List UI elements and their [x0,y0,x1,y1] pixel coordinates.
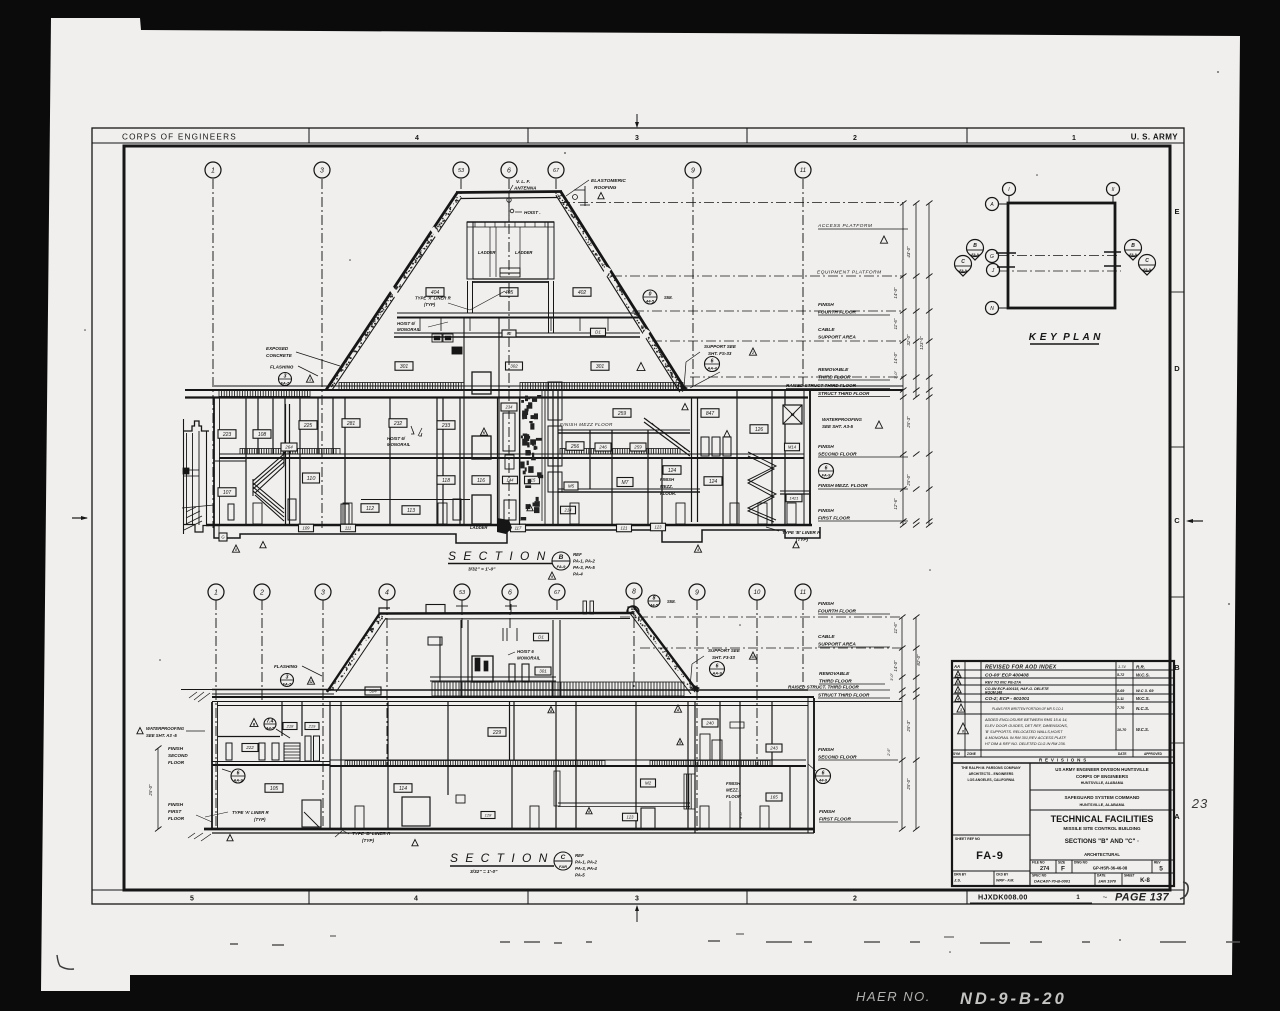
svg-text:FINISH: FINISH [818,601,834,607]
svg-text:ANTENNA: ANTENNA [513,186,536,191]
svg-text:C: C [1145,258,1149,264]
svg-text:J: J [991,268,995,274]
svg-text:14'-0": 14'-0" [893,660,898,672]
svg-text:234: 234 [505,405,514,410]
svg-text:FLASHING: FLASHING [274,664,298,669]
svg-text:SHEET: SHEET [1124,874,1135,878]
svg-text:SECOND: SECOND [168,753,188,758]
svg-text:D1: D1 [595,330,601,335]
svg-text:M5: M5 [568,484,575,489]
svg-text:0: 0 [649,292,652,298]
svg-text:144: 144 [507,478,515,483]
svg-text:FA-9: FA-9 [971,253,978,257]
svg-text:REMOVABLE: REMOVABLE [819,671,850,677]
svg-text:44-5: 44-5 [645,299,655,304]
svg-text:MONORAIL: MONORAIL [397,327,421,332]
svg-text:M2: M2 [645,781,652,786]
svg-text:PA-4: PA-4 [573,572,583,577]
svg-text:301: 301 [596,364,605,370]
svg-text:4: 4 [696,548,699,552]
svg-text:25'-3": 25'-3" [906,720,911,733]
svg-text:FLOOR.: FLOOR. [660,491,676,496]
svg-text:MONORAIL: MONORAIL [517,656,541,661]
svg-text:1-11: 1-11 [1117,697,1124,701]
svg-text:CABLE: CABLE [818,327,835,333]
svg-text:6: 6 [822,771,825,777]
svg-text:11'-6": 11'-6" [893,318,898,329]
svg-text:REV TO INC PE-27A: REV TO INC PE-27A [985,681,1021,685]
svg-text:FA-9: FA-9 [976,850,1004,862]
svg-text:HAER NO.: HAER NO. [856,989,931,1004]
svg-text:AA-4: AA-4 [706,366,717,371]
svg-text:82'-0": 82'-0" [916,654,921,666]
svg-text:W.C.S.: W.C.S. [1136,696,1150,701]
svg-text:SYM: SYM [953,752,960,756]
svg-text:10: 10 [751,655,755,659]
svg-text:THIRD FLOOR: THIRD FLOOR [818,375,851,381]
svg-text:53: 53 [458,168,465,174]
svg-text:ARCHITECTS - ENGINEERS: ARCHITECTS - ENGINEERS [969,772,1015,776]
svg-text:1: 1 [1072,135,1076,142]
svg-text:P L A N: P L A N [1063,332,1101,343]
svg-text:K E Y: K E Y [1029,332,1058,343]
svg-text:274: 274 [1040,866,1050,872]
svg-text:WRP - F.M.: WRP - F.M. [996,879,1014,883]
svg-text:225: 225 [303,423,313,429]
svg-text:CO-2; ECP - 601001: CO-2; ECP - 601001 [985,696,1030,702]
svg-text:FINISH MEZZ FLOOR: FINISH MEZZ FLOOR [560,422,613,427]
svg-text:1: 1 [211,168,215,175]
svg-text:DWG NO: DWG NO [1074,861,1088,865]
svg-text:8: 8 [235,548,237,552]
svg-text:4: 4 [956,697,959,701]
svg-text:PA-3, PA-4: PA-3, PA-4 [575,866,597,871]
svg-text:THE RALPH M. PARSONS COMPANY: THE RALPH M. PARSONS COMPANY [961,766,1021,770]
svg-text:8: 8 [632,589,636,596]
svg-text:EQUIPMENT PLATFORM: EQUIPMENT PLATFORM [817,270,882,276]
svg-text:14'-0": 14'-0" [893,352,898,364]
svg-text:MEZZ.: MEZZ. [726,788,739,793]
svg-text:FINISH: FINISH [168,746,184,751]
svg-text:FINISH: FINISH [818,444,834,450]
svg-text:6: 6 [711,359,714,365]
svg-text:CKD BY: CKD BY [996,873,1009,877]
svg-text:67: 67 [553,168,560,174]
svg-text:FA-9: FA-9 [959,269,966,273]
svg-text:REV: REV [1154,861,1161,865]
svg-text:TECHNICAL FACILITIES: TECHNICAL FACILITIES [1051,814,1154,824]
svg-text:109: 109 [303,526,311,531]
svg-text:44-5: 44-5 [649,603,659,608]
svg-text:FLOOR: FLOOR [168,760,185,765]
svg-text:7-70: 7-70 [1117,706,1124,710]
svg-text:117: 117 [515,526,522,531]
svg-text:107: 107 [223,490,232,496]
svg-text:12'-6": 12'-6" [893,498,898,510]
svg-text:WATERPROOFING: WATERPROOFING [146,726,185,731]
svg-text:13: 13 [956,681,960,685]
svg-text:214: 214 [564,508,573,513]
svg-text:11'-6": 11'-6" [893,622,898,633]
svg-text:W.C.S.: W.C.S. [1136,727,1149,732]
svg-text:402: 402 [578,290,587,296]
svg-text:K-8: K-8 [1140,878,1150,884]
svg-text:ROOFING: ROOFING [594,185,617,191]
svg-text:C: C [561,854,566,861]
svg-text:256: 256 [570,444,580,450]
svg-text:ND-9-B-20: ND-9-B-20 [960,990,1067,1008]
svg-text:DACA87-70-B-0001: DACA87-70-B-0001 [1034,879,1071,884]
svg-text:259: 259 [633,445,642,450]
svg-text:3: 3 [286,675,289,681]
svg-text:ROOM 248: ROOM 248 [985,691,1002,695]
svg-text:HOIST 6: HOIST 6 [517,649,534,654]
svg-text:R E V I S I O N S: R E V I S I O N S [1039,758,1087,763]
svg-text:D1: D1 [538,635,544,640]
svg-text:7.4: 7.4 [267,719,274,725]
svg-text:E: E [1174,207,1179,216]
svg-text:123: 123 [655,525,663,530]
svg-text:FA-9: FA-9 [557,564,566,569]
svg-text:REF: REF [573,552,582,557]
svg-text:124: 124 [668,468,677,474]
svg-text:AA-9: AA-9 [711,671,722,676]
svg-text:3: 3 [635,135,639,142]
svg-text:12: 12 [309,680,313,684]
svg-text:2'-6": 2'-6" [887,748,891,757]
svg-text:25'-0": 25'-0" [906,778,911,791]
svg-text:3/32" = 1'-0": 3/32" = 1'-0" [468,567,496,573]
svg-text:WATERPROOFING: WATERPROOFING [822,417,862,422]
svg-text:5: 5 [679,741,681,745]
svg-text:PLANS PER WRITTEN PORTION OF M: PLANS PER WRITTEN PORTION OF MR S CO-1 [992,707,1063,711]
svg-text:HT DIM & REF NO. DELETED CLG I: HT DIM & REF NO. DELETED CLG IN RM 236. [985,742,1066,746]
svg-text:44-9: 44-9 [818,778,828,783]
svg-text:123'-5": 123'-5" [919,336,924,350]
svg-text:FAR: FAR [559,864,567,869]
svg-text:SUPPORT AREA: SUPPORT AREA [818,642,856,648]
svg-text:4: 4 [414,896,418,903]
svg-text:FINISH: FINISH [818,302,834,308]
svg-text:LADDER: LADDER [478,250,495,255]
svg-text:ACCESS PLATFORM: ACCESS PLATFORM [817,223,872,229]
svg-text:1: 1 [309,378,311,382]
svg-text:25'-0": 25'-0" [148,784,153,797]
svg-text:R.R.: R.R. [1136,665,1145,670]
svg-text:STRUCT THIRD FLOOR: STRUCT THIRD FLOOR [818,391,870,396]
svg-text:246: 246 [598,445,607,450]
svg-text:SIM.: SIM. [667,599,676,604]
svg-text:MISSILE SITE CONTROL BUILDI: MISSILE SITE CONTROL BUILDING [1063,826,1141,831]
svg-text:SUPPORT SEE: SUPPORT SEE [708,648,741,653]
svg-text:6: 6 [508,590,512,597]
svg-text:SIZE: SIZE [1058,861,1065,865]
svg-text:25'-0": 25'-0" [906,474,911,487]
svg-text:G: G [990,254,994,260]
svg-text:1-74: 1-74 [1118,665,1126,669]
svg-text:3'-0": 3'-0" [893,370,898,379]
svg-text:FLASHING: FLASHING [270,365,294,370]
svg-text:HOIST 6/: HOIST 6/ [397,321,416,326]
svg-text:(TYP): (TYP) [796,537,808,542]
svg-text:114: 114 [399,786,407,792]
svg-text:218: 218 [286,723,294,728]
svg-text:3: 3 [284,374,287,380]
svg-text:SHEET REF NO: SHEET REF NO [955,837,980,841]
svg-text:116: 116 [477,478,485,484]
svg-text:TYPE 'X' LINER R: TYPE 'X' LINER R [415,296,452,301]
svg-text:232: 232 [393,421,403,427]
svg-text:(TYP): (TYP) [424,302,436,307]
svg-text:FLOOR: FLOOR [726,794,742,799]
svg-text:5: 5 [1159,866,1163,873]
svg-text:A: A [989,202,994,208]
svg-text:LOS ANGELES, CALIFORNIA: LOS ANGELES, CALIFORNIA [968,778,1016,782]
svg-text:SECTIONS "B" AND "C" ·: SECTIONS "B" AND "C" · [1065,838,1139,845]
svg-text:219: 219 [308,723,316,728]
svg-text:B: B [559,554,564,561]
svg-text:3: 3 [960,708,962,712]
svg-text:RAISED STRUCT. THIRD FLOOR: RAISED STRUCT. THIRD FLOOR [788,685,860,690]
svg-text:M: M [791,412,795,417]
svg-text:259: 259 [617,411,627,417]
svg-text:3: 3 [320,168,324,175]
svg-text:8: 8 [653,596,656,602]
svg-text:S E C T I O N: S E C T I O N [448,549,547,563]
svg-text:FILE NO: FILE NO [1032,861,1045,865]
svg-text:SAFEGUARD SYSTEM COMMAND: SAFEGUARD SYSTEM COMMAND [1064,795,1140,800]
svg-text:SEE SHT. A3 -5: SEE SHT. A3 -5 [146,733,177,738]
svg-text:11: 11 [800,590,806,596]
svg-text:REF: REF [575,853,584,858]
svg-text:2: 2 [259,590,264,597]
svg-text:PA-5: PA-5 [575,873,585,878]
svg-text:ARCHITECTURAL: ARCHITECTURAL [1084,852,1120,857]
svg-text:112: 112 [366,506,374,512]
svg-text:3/32" = 1'-0": 3/32" = 1'-0" [470,869,498,875]
svg-text:1421: 1421 [790,495,799,500]
svg-text:APPROVED: APPROVED [1144,752,1163,756]
svg-text:223: 223 [222,432,232,438]
svg-text:D: D [1174,364,1180,373]
svg-text:CO-00' ECP 400408: CO-00' ECP 400408 [985,673,1029,679]
svg-text:FINISH: FINISH [168,802,184,807]
svg-text:'B' SUPPORTS. RELOCATED WALLS: 'B' SUPPORTS. RELOCATED WALLS,HOIST [985,730,1063,734]
svg-text:9: 9 [691,168,695,175]
svg-text:PA-3, PA-5: PA-3, PA-5 [573,565,595,570]
svg-text:301: 301 [400,364,409,370]
svg-text:301: 301 [539,669,547,674]
svg-text:2: 2 [853,135,857,142]
svg-text:C: C [961,259,965,265]
svg-text:SPEC NO: SPEC NO [1032,874,1047,878]
svg-text:FA-9: FA-9 [1143,268,1150,272]
svg-text:6: 6 [716,664,719,670]
svg-text:B: B [973,243,977,249]
svg-text:TYPE 'A' LINER R: TYPE 'A' LINER R [232,810,270,815]
svg-text:FLOOR: FLOOR [168,816,185,821]
svg-text:N: N [990,306,994,312]
svg-text:MEZZ.: MEZZ. [660,484,673,489]
svg-text:TYPE 'B' LINER R: TYPE 'B' LINER R [352,831,391,836]
svg-text:FIRST: FIRST [168,809,182,814]
svg-text:23: 23 [1191,796,1208,811]
svg-text:222: 222 [245,745,254,750]
svg-text:11: 11 [800,168,806,174]
svg-text:AA: AA [953,664,960,669]
svg-text:FINISH: FINISH [660,477,675,482]
svg-text:SUPPORT SEE: SUPPORT SEE [704,344,737,349]
svg-text:113: 113 [407,508,415,514]
svg-text:233: 233 [441,423,451,429]
svg-text:HOIST 6/: HOIST 6/ [387,436,406,441]
svg-text:ELASTOMERIC: ELASTOMERIC [591,178,626,184]
svg-text:B: B [1174,663,1180,672]
svg-text:32'-0": 32'-0" [906,334,911,346]
svg-text:25'-3": 25'-3" [906,416,911,429]
svg-text:C: C [1174,516,1180,525]
svg-text:REMOVABLE: REMOVABLE [818,367,849,373]
svg-text:6: 6 [237,771,240,777]
svg-text:FINISH: FINISH [726,781,741,786]
svg-text:W.C 3. 69: W.C 3. 69 [1136,688,1154,693]
svg-text:GP-HSR-36-46-08: GP-HSR-36-46-08 [1093,866,1128,871]
svg-text:REVISED FOR AOD INDEX: REVISED FOR AOD INDEX [985,665,1057,671]
svg-text:126: 126 [755,427,764,433]
svg-text:9: 9 [551,575,553,579]
svg-text:6: 6 [507,168,511,175]
svg-text:~: ~ [1103,893,1108,902]
svg-text:5-72: 5-72 [1117,673,1124,677]
svg-text:FINISH: FINISH [818,747,834,753]
svg-text:105: 105 [270,786,279,792]
svg-text:SHT. F3-33: SHT. F3-33 [712,655,735,660]
svg-text:F: F [1061,866,1065,873]
svg-text:CABLE: CABLE [818,634,835,640]
svg-text:229: 229 [492,730,502,736]
svg-text:10: 10 [754,590,761,596]
svg-text:9: 9 [695,590,699,597]
svg-text:110: 110 [307,476,317,482]
svg-text:108: 108 [258,432,267,438]
svg-text:8-69: 8-69 [1117,689,1124,693]
svg-text:2: 2 [853,896,857,903]
svg-text:LADDER: LADDER [470,525,487,530]
svg-text:264: 264 [284,445,293,450]
svg-text:3: 3 [321,590,325,597]
svg-text:3: 3 [635,896,639,903]
svg-text:AA-9: AA-9 [232,778,243,783]
svg-text:10-70: 10-70 [1117,728,1126,732]
svg-text:SEE SHT. A3-5: SEE SHT. A3-5 [822,424,854,429]
svg-text:HJXDK008.00: HJXDK008.00 [978,893,1028,902]
svg-text:9'-0": 9'-0" [738,810,743,819]
svg-text:240: 240 [705,721,714,726]
svg-text:A4-5: A4-5 [265,726,275,731]
svg-text:CORPS OF ENGINEERS: CORPS OF ENGINEERS [122,133,237,142]
svg-text:US ARMY ENGINEER DIVISION H: US ARMY ENGINEER DIVISION HUNTSVILLE [1055,767,1149,772]
svg-text:FA-5: FA-5 [283,682,292,687]
svg-text:W.C.S.: W.C.S. [1136,673,1150,678]
svg-text:SIM.: SIM. [664,295,673,300]
svg-text:SHT. FS-33: SHT. FS-33 [708,351,732,356]
svg-text:FOURTH FLOOR: FOURTH FLOOR [818,310,857,316]
svg-text:HUNTSVILLE, ALABAMA: HUNTSVILLE, ALABAMA [1081,781,1124,785]
svg-text:TYPE 'B' LINER R: TYPE 'B' LINER R [782,530,821,535]
svg-text:67: 67 [554,590,561,596]
svg-text:847: 847 [706,411,715,417]
svg-text:123: 123 [627,815,635,820]
svg-text:PA-1, PA-2: PA-1, PA-2 [573,559,595,564]
svg-text:5: 5 [190,896,194,903]
svg-text:(TYP): (TYP) [254,817,266,822]
svg-text:111: 111 [345,526,351,531]
svg-text:118: 118 [442,478,450,484]
svg-text:6: 6 [588,810,590,814]
svg-text:B: B [1131,243,1135,249]
svg-text:128: 128 [485,812,492,817]
svg-text:JAN 1970: JAN 1970 [1098,879,1117,884]
svg-text:MONORAIL: MONORAIL [387,442,411,447]
svg-text:14'-0": 14'-0" [893,287,898,299]
svg-text:V. L. F.: V. L. F. [516,179,530,184]
svg-text:ELEV DOOR GUIDES, DET REF, DIM: ELEV DOOR GUIDES, DET REF, DIMENSIONS, [985,724,1068,728]
svg-text:LADDER: LADDER [515,250,532,255]
svg-text:RAISED STRUCT THIRD FLOOR: RAISED STRUCT THIRD FLOOR [786,383,857,388]
svg-text:PAGE 137: PAGE 137 [1115,892,1170,904]
svg-text:4: 4 [415,135,419,142]
svg-text:4: 4 [385,590,389,597]
svg-text:CORPS OF ENGINEERS: CORPS OF ENGINEERS [1076,774,1128,779]
svg-text:A: A [1174,812,1180,821]
svg-text:FA-9: FA-9 [1129,253,1136,257]
svg-text:FA-9: FA-9 [822,473,831,478]
svg-text:6: 6 [825,466,828,472]
svg-text:53: 53 [459,590,466,596]
svg-text:J.S.: J.S. [954,878,961,883]
svg-text:4: 4 [956,689,959,693]
svg-text:EXPOSED: EXPOSED [266,346,289,351]
svg-text:FA-5: FA-5 [281,381,290,386]
svg-text:S E C T I O N: S E C T I O N [450,851,549,865]
svg-text:PA-1, PA-2: PA-1, PA-2 [575,860,597,865]
svg-text:HOIST .: HOIST . [524,210,541,215]
svg-text:302: 302 [510,364,518,369]
svg-text:165: 165 [770,795,778,800]
svg-text:DATE: DATE [1097,874,1105,878]
svg-text:N.C.S.: N.C.S. [1136,706,1149,711]
svg-text:ZONE: ZONE [967,752,976,756]
svg-text:U. S. ARMY: U. S. ARMY [1131,133,1179,142]
svg-text:CONCRETE: CONCRETE [266,353,293,358]
svg-text:FINISH: FINISH [818,508,834,514]
svg-text:SUPPORT AREA: SUPPORT AREA [818,335,856,341]
svg-text:FOURTH FLOOR: FOURTH FLOOR [818,609,857,615]
svg-text:ADDED ENCLOSURE BETWEEN RMS 15: ADDED ENCLOSURE BETWEEN RMS 15 & 14, [984,718,1068,722]
svg-text:14: 14 [956,673,960,677]
svg-text:& MONORAIL IN RM 301,REV ACCES: & MONORAIL IN RM 301,REV ACCESS PLATF. [985,736,1067,740]
svg-text:DRN BY: DRN BY [954,873,967,877]
svg-text:FINISH: FINISH [819,809,835,815]
svg-text:M14: M14 [788,445,797,450]
svg-text:281: 281 [346,421,356,427]
svg-text:243: 243 [769,746,778,751]
svg-text:121: 121 [621,526,628,531]
svg-text:HUNTSVILLE, ALABAMA: HUNTSVILLE, ALABAMA [1080,803,1125,807]
svg-text:STRUCT THIRD FLOOR: STRUCT THIRD FLOOR [818,693,870,698]
svg-text:8: 8 [962,729,964,733]
svg-text:M7: M7 [622,480,629,486]
